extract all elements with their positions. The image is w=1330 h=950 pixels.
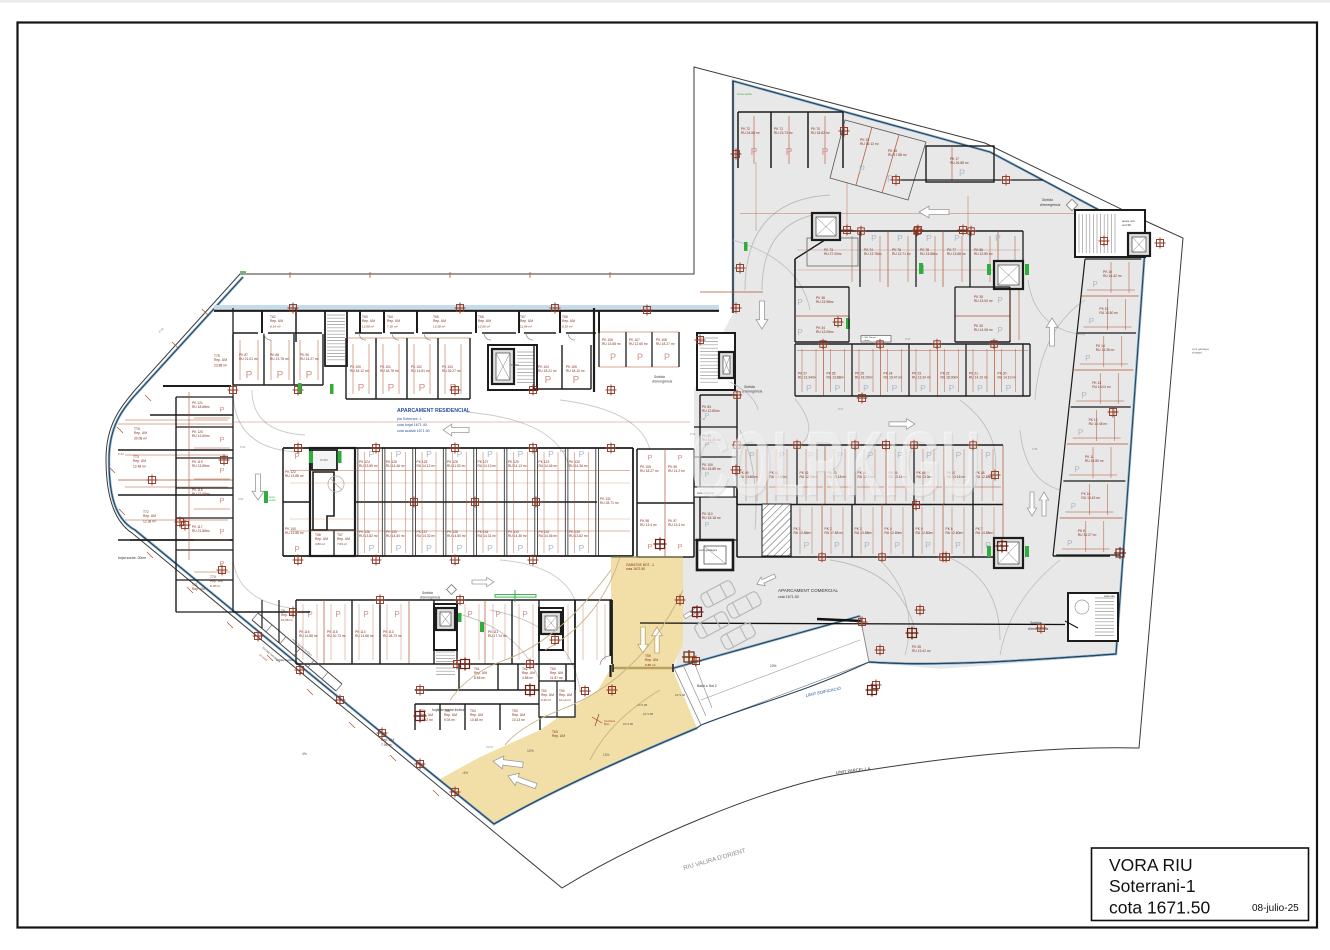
svg-text:P: P: [822, 147, 829, 158]
svg-text:P: P: [306, 370, 313, 381]
svg-text:P: P: [388, 383, 395, 394]
svg-text:RU 13.88m²: RU 13.88m²: [855, 531, 874, 535]
svg-text:7.63 m²: 7.63 m²: [337, 542, 347, 546]
svg-text:1671.98: 1671.98: [637, 703, 648, 707]
svg-text:COLRKIGU: COLRKIGU: [690, 413, 980, 515]
svg-text:P: P: [363, 610, 368, 619]
svg-text:RU 14.08 m²: RU 14.08 m²: [974, 328, 994, 332]
svg-text:RU 23.98m²: RU 23.98m²: [816, 300, 835, 304]
svg-text:P99: P99: [238, 497, 244, 501]
svg-text:Rep. UM: Rep. UM: [522, 671, 535, 675]
svg-text:RU 30.73 m²: RU 30.73 m²: [327, 634, 347, 638]
svg-text:10%: 10%: [770, 664, 777, 668]
svg-text:Rep. UM: Rep. UM: [645, 658, 658, 662]
svg-text:P: P: [677, 542, 682, 551]
svg-text:Rep. UM: Rep. UM: [143, 514, 156, 518]
svg-text:RU 14.66 m²: RU 14.66 m²: [355, 634, 375, 638]
svg-text:P: P: [995, 233, 1001, 243]
svg-text:RU 14.88m²: RU 14.88m²: [976, 531, 995, 535]
svg-text:8.14 m²: 8.14 m²: [270, 325, 281, 329]
svg-text:Rep. UM: Rep. UM: [512, 713, 525, 717]
svg-text:P: P: [797, 298, 802, 307]
svg-text:P42: P42: [560, 449, 566, 453]
svg-text:RU 28.71 m²: RU 28.71 m²: [600, 501, 620, 505]
svg-text:RU 13.85 m²: RU 13.85 m²: [359, 464, 379, 468]
svg-text:Sortida: Sortida: [422, 591, 433, 595]
svg-text:RU 23.73 m²: RU 23.73 m²: [774, 131, 794, 135]
svg-text:RU 14.13 m²: RU 14.13 m²: [478, 464, 498, 468]
svg-text:P: P: [426, 449, 432, 459]
svg-text:8.65 m²: 8.65 m²: [474, 676, 486, 680]
svg-text:RU 21.01 m²: RU 21.01 m²: [239, 357, 259, 361]
svg-text:08-julio-25: 08-julio-25: [1252, 903, 1299, 914]
svg-text:P: P: [457, 543, 463, 553]
svg-text:P: P: [751, 147, 758, 158]
svg-text:sala màq.: sala màq.: [1104, 594, 1116, 598]
svg-text:Rep. UM: Rep. UM: [552, 734, 565, 738]
svg-text:P: P: [219, 496, 224, 505]
svg-text:4%: 4%: [302, 752, 307, 756]
svg-text:VORA RIU: VORA RIU: [1109, 855, 1193, 875]
svg-text:RU 13.00 m²: RU 13.00 m²: [974, 299, 994, 303]
svg-text:RU 13.78 m²: RU 13.78 m²: [270, 357, 290, 361]
svg-text:RU 14.88 m²: RU 14.88 m²: [299, 634, 319, 638]
svg-text:RU 13.42 m²: RU 13.42 m²: [912, 649, 932, 653]
svg-text:-4%: -4%: [462, 771, 468, 775]
svg-text:d'emergència: d'emergència: [420, 596, 440, 600]
svg-text:7.20 m²: 7.20 m²: [387, 325, 398, 329]
svg-text:RU 18.27 m²: RU 18.27 m²: [656, 342, 676, 346]
svg-text:Rep. UM: Rep. UM: [444, 713, 457, 717]
svg-text:RU 14.30 m²: RU 14.30 m²: [386, 534, 406, 538]
svg-text:Rep. UM: Rep. UM: [562, 319, 575, 323]
svg-text:RU 13.4 m²: RU 13.4 m²: [668, 523, 686, 527]
svg-text:P: P: [548, 449, 554, 459]
svg-text:P: P: [219, 466, 224, 475]
svg-text:P47: P47: [838, 407, 844, 411]
svg-text:P: P: [369, 449, 375, 459]
svg-text:Rep. UM: Rep. UM: [270, 319, 283, 323]
svg-text:P: P: [495, 610, 500, 619]
svg-text:P-62: P-62: [118, 452, 124, 456]
svg-text:P: P: [797, 328, 802, 337]
svg-text:30.08 m²: 30.08 m²: [134, 437, 148, 441]
svg-text:RU 12.80 m²: RU 12.80 m²: [974, 252, 994, 256]
svg-text:Rep. UM: Rep. UM: [133, 459, 146, 463]
svg-text:RU 14.12 m²: RU 14.12 m²: [417, 464, 437, 468]
svg-text:RU 13.82 m²: RU 13.82 m²: [569, 534, 589, 538]
svg-text:verda: verda: [269, 498, 276, 502]
svg-text:9.16 m²: 9.16 m²: [541, 698, 551, 702]
svg-text:RU 14.35 m²: RU 14.35 m²: [1096, 348, 1116, 352]
svg-text:Rep. UM: Rep. UM: [214, 358, 227, 362]
svg-text:RU 18.21 m²: RU 18.21 m²: [538, 369, 558, 373]
svg-text:13.38 m²: 13.38 m²: [433, 325, 445, 329]
svg-text:P46: P46: [700, 417, 706, 421]
svg-text:P: P: [920, 383, 926, 393]
svg-text:P102: P102: [486, 745, 493, 749]
svg-text:RU 12.80m²: RU 12.80m²: [885, 531, 904, 535]
svg-text:11.84 m²: 11.84 m²: [520, 325, 532, 329]
svg-text:RU 14.13 m²: RU 14.13 m²: [508, 464, 528, 468]
svg-text:P: P: [610, 352, 616, 362]
svg-text:RU 27.00m²: RU 27.00m²: [824, 252, 843, 256]
svg-text:P: P: [1071, 502, 1076, 511]
svg-text:RU 12.60m²: RU 12.60m²: [192, 434, 211, 438]
svg-text:RU 17.88 m²: RU 17.88 m²: [825, 531, 845, 535]
svg-text:4.88 m²: 4.88 m²: [522, 676, 534, 680]
svg-text:P: P: [518, 449, 524, 459]
svg-text:P: P: [897, 233, 903, 243]
svg-text:P: P: [871, 233, 877, 243]
svg-text:P: P: [246, 370, 253, 381]
svg-text:Rep. UM: Rep. UM: [520, 319, 533, 323]
svg-text:P: P: [294, 545, 299, 554]
svg-text:P: P: [579, 449, 585, 459]
svg-text:P: P: [219, 405, 224, 414]
svg-text:P: P: [977, 383, 983, 393]
svg-text:P43: P43: [690, 432, 696, 436]
svg-text:P: P: [396, 543, 402, 553]
svg-text:RU 14.36 m²: RU 14.36 m²: [539, 534, 559, 538]
svg-text:Rep. UM: Rep. UM: [387, 319, 400, 323]
svg-text:zona verda: zona verda: [737, 92, 752, 96]
svg-text:P: P: [545, 375, 552, 386]
svg-text:Soterrani-1: Soterrani-1: [1109, 876, 1196, 896]
svg-text:10.48 m²: 10.48 m²: [470, 718, 484, 722]
svg-text:P: P: [1074, 465, 1079, 474]
svg-text:RU 13.88m²: RU 13.88m²: [827, 376, 846, 380]
svg-text:P: P: [487, 449, 493, 459]
svg-text:8.18 m²: 8.18 m²: [210, 584, 220, 588]
svg-text:Balcó s. Bot 2: Balcó s. Bot 2: [697, 684, 717, 688]
svg-text:RU 13.50 m²: RU 13.50 m²: [1099, 311, 1119, 315]
svg-text:P: P: [369, 543, 375, 553]
svg-text:P: P: [1082, 391, 1087, 400]
svg-text:RU 14.27 m²: RU 14.27 m²: [300, 357, 320, 361]
svg-text:forjat de sostre inclinat: forjat de sostre inclinat: [432, 708, 465, 712]
svg-text:cota 1671.50: cota 1671.50: [1109, 898, 1210, 918]
svg-text:P: P: [677, 453, 682, 462]
svg-text:RU 13.48 m²: RU 13.48 m²: [1089, 422, 1109, 426]
svg-text:RU 13.4 m²: RU 13.4 m²: [640, 523, 658, 527]
svg-text:RU 18.18 m²: RU 18.18 m²: [702, 516, 722, 520]
svg-text:PAM6: PAM6: [511, 363, 519, 367]
svg-text:P: P: [985, 450, 991, 460]
svg-text:P: P: [997, 296, 1002, 305]
svg-text:RU 14.36 m²: RU 14.36 m²: [569, 464, 589, 468]
svg-text:P: P: [954, 233, 960, 243]
svg-text:RU 12.88 m²: RU 12.88 m²: [285, 531, 305, 535]
svg-text:RU 14.10 m²: RU 14.10 m²: [998, 376, 1018, 380]
svg-text:P: P: [664, 352, 670, 362]
svg-text:cota forjat 1671.40: cota forjat 1671.40: [397, 423, 427, 427]
svg-text:L.SM. Dimens.: L.SM. Dimens.: [863, 337, 878, 339]
svg-text:3.80 m²: 3.80 m²: [315, 542, 325, 546]
svg-text:9.04 m²: 9.04 m²: [444, 718, 456, 722]
svg-text:RU 28.73 m²: RU 28.73 m²: [383, 634, 403, 638]
svg-text:Rep. UM: Rep. UM: [559, 693, 572, 697]
svg-text:P: P: [637, 352, 643, 362]
svg-text:RU 18.82 m²: RU 18.82 m²: [811, 131, 831, 135]
svg-text:s.dades: s.dades: [863, 340, 872, 342]
svg-text:P: P: [1006, 383, 1012, 393]
svg-text:RU 14.42 m²: RU 14.42 m²: [1103, 274, 1123, 278]
svg-text:Rep. UM: Rep. UM: [192, 587, 205, 591]
svg-text:P48: P48: [1032, 447, 1038, 451]
svg-text:P: P: [955, 540, 961, 550]
svg-text:RU 11.52 m²: RU 11.52 m²: [447, 464, 466, 468]
svg-text:cota 1671.50: cota 1671.50: [626, 567, 645, 571]
svg-text:sort 98: sort 98: [1122, 223, 1131, 227]
svg-text:RU 12.80m²: RU 12.80m²: [916, 531, 935, 535]
svg-text:8.20 m²: 8.20 m²: [562, 325, 573, 329]
svg-text:P: P: [487, 543, 493, 553]
svg-text:P: P: [647, 542, 652, 551]
svg-text:APARCAMENT RESIDENCIAL: APARCAMENT RESIDENCIAL: [397, 408, 471, 414]
svg-text:forjat sostre -30cm: forjat sostre -30cm: [118, 556, 146, 560]
svg-text:Sortida: Sortida: [1042, 198, 1053, 202]
svg-text:P: P: [997, 326, 1002, 335]
svg-text:P: P: [926, 233, 932, 243]
svg-text:RU 14.2 m²: RU 14.2 m²: [668, 469, 686, 473]
svg-text:pla Soterrani -1: pla Soterrani -1: [397, 417, 422, 421]
svg-text:P: P: [1067, 539, 1072, 548]
svg-text:P: P: [548, 543, 554, 553]
svg-text:10.13 m²: 10.13 m²: [512, 718, 526, 722]
svg-text:1671.98: 1671.98: [675, 693, 686, 697]
svg-text:cota acabat 1671.50: cota acabat 1671.50: [397, 429, 430, 433]
svg-text:P: P: [895, 540, 901, 550]
svg-text:RU 13.34 m²: RU 13.34 m²: [912, 376, 932, 380]
svg-text:Sortida: Sortida: [744, 385, 755, 389]
svg-text:P: P: [419, 383, 426, 394]
svg-text:RU 14.46 m²: RU 14.46 m²: [539, 464, 559, 468]
svg-text:P: P: [277, 370, 284, 381]
svg-text:10.68 m²: 10.68 m²: [281, 618, 293, 622]
svg-text:P: P: [804, 540, 810, 550]
svg-text:Bosc: Bosc: [604, 723, 610, 726]
svg-text:P: P: [1085, 354, 1090, 363]
svg-text:23.88 m²: 23.88 m²: [214, 364, 228, 368]
svg-text:P: P: [467, 610, 472, 619]
svg-text:vent garatges: vent garatges: [699, 548, 718, 552]
svg-text:11.87 m²: 11.87 m²: [550, 676, 564, 680]
svg-text:RU 13.05m²: RU 13.05m²: [816, 330, 835, 334]
svg-text:12.48 m²: 12.48 m²: [133, 465, 147, 469]
svg-text:P: P: [219, 527, 224, 536]
svg-text:RU 18.10 m²: RU 18.10 m²: [566, 369, 586, 373]
svg-text:P: P: [573, 375, 580, 386]
svg-text:RU 13.34m²: RU 13.34m²: [798, 376, 817, 380]
svg-text:RU 27.08m²: RU 27.08m²: [192, 492, 211, 496]
svg-text:P: P: [394, 610, 399, 619]
svg-text:P: P: [219, 435, 224, 444]
svg-text:P: P: [835, 383, 841, 393]
svg-text:RU 13.88 m²: RU 13.88 m²: [947, 252, 967, 256]
svg-text:RU 18.01 m²: RU 18.01 m²: [1092, 385, 1112, 389]
svg-text:RU 24.88 m²: RU 24.88 m²: [741, 131, 761, 135]
svg-text:RU 14.36 m²: RU 14.36 m²: [508, 534, 528, 538]
svg-text:PAM5: PAM5: [320, 458, 328, 462]
svg-text:P43: P43: [240, 445, 246, 449]
svg-text:RU 13.88m²: RU 13.88m²: [920, 252, 939, 256]
svg-text:P: P: [864, 540, 870, 550]
svg-text:RU 14.10 m²: RU 14.10 m²: [969, 376, 989, 380]
svg-text:P: P: [358, 383, 365, 394]
svg-text:RU 14.46 m²: RU 14.46 m²: [386, 464, 406, 468]
svg-text:12%: 12%: [603, 753, 610, 757]
svg-text:RU 13.58 m²: RU 13.58 m²: [602, 342, 622, 346]
svg-text:RU 18.68m²: RU 18.68m²: [192, 405, 211, 409]
svg-text:APARCAMENT COMERCIAL: APARCAMENT COMERCIAL: [778, 588, 839, 593]
svg-text:P: P: [834, 540, 840, 550]
svg-text:RU 17.14 m²: RU 17.14 m²: [488, 634, 508, 638]
svg-text:10.13 m²: 10.13 m²: [559, 698, 571, 702]
svg-text:P: P: [705, 522, 710, 529]
svg-text:1671.80: 1671.80: [623, 722, 634, 726]
svg-text:RU 15.13 m²: RU 15.13 m²: [860, 142, 880, 146]
svg-text:P: P: [450, 383, 457, 394]
svg-text:P: P: [457, 449, 463, 459]
svg-text:RU 13.85m²: RU 13.85m²: [192, 464, 211, 468]
svg-text:8.88 m²: 8.88 m²: [645, 663, 656, 667]
svg-text:RU 12.60 m²: RU 12.60 m²: [629, 342, 649, 346]
svg-text:Rep. UM: Rep. UM: [541, 693, 554, 697]
svg-text:P: P: [863, 383, 869, 393]
svg-text:P: P: [786, 147, 793, 158]
svg-text:7.96 m²: 7.96 m²: [381, 743, 393, 747]
svg-text:Rep. UM: Rep. UM: [134, 431, 147, 435]
svg-text:RU 13.88m²: RU 13.88m²: [794, 531, 813, 535]
svg-text:sortida vianants: sortida vianants: [276, 658, 295, 662]
svg-text:RU 18.00m²: RU 18.00m²: [941, 376, 960, 380]
svg-text:P: P: [1092, 280, 1097, 289]
svg-text:Rep. UM: Rep. UM: [478, 319, 491, 323]
svg-text:cota 1671.50: cota 1671.50: [778, 595, 799, 599]
svg-text:P44: P44: [748, 475, 754, 479]
svg-text:P: P: [647, 453, 652, 462]
svg-text:RU 12.80m²: RU 12.80m²: [946, 531, 965, 535]
svg-text:P: P: [859, 164, 865, 174]
svg-text:Rep. UM: Rep. UM: [337, 537, 350, 541]
svg-text:Rep. UM: Rep. UM: [433, 319, 446, 323]
svg-text:P: P: [294, 452, 299, 461]
svg-text:d'emergència: d'emergència: [1040, 203, 1060, 207]
svg-text:RU 18.29m²: RU 18.29m²: [855, 376, 874, 380]
svg-text:12.88 m²: 12.88 m²: [362, 325, 374, 329]
svg-text:P: P: [892, 383, 898, 393]
svg-text:P: P: [522, 610, 527, 619]
svg-text:RU 13.71 m²: RU 13.71 m²: [892, 252, 912, 256]
svg-text:P: P: [335, 610, 340, 619]
svg-text:P: P: [1078, 428, 1083, 437]
svg-text:P45: P45: [905, 337, 911, 341]
svg-text:P: P: [518, 543, 524, 553]
svg-text:RU 21.88m²: RU 21.88m²: [192, 529, 211, 533]
svg-text:RU 15.47 m²: RU 15.47 m²: [884, 376, 904, 380]
svg-text:RU 13.43 m²: RU 13.43 m²: [1081, 496, 1101, 500]
svg-text:P: P: [806, 383, 812, 393]
svg-text:12%: 12%: [527, 749, 534, 753]
svg-text:P: P: [925, 540, 931, 550]
svg-text:Rep. UM: Rep. UM: [210, 579, 223, 583]
svg-text:1671.88: 1671.88: [643, 712, 654, 716]
svg-text:P: P: [1089, 317, 1094, 326]
svg-text:d'emergència: d'emergència: [652, 380, 672, 384]
svg-text:P: P: [579, 543, 585, 553]
svg-text:Rep. UM: Rep. UM: [362, 319, 375, 323]
svg-text:Rep. UM: Rep. UM: [550, 671, 563, 675]
svg-text:s/rasant: s/rasant: [1192, 351, 1202, 355]
svg-text:Sortida: Sortida: [654, 375, 665, 379]
svg-text:RU 13.88 m²: RU 13.88 m²: [285, 474, 305, 478]
svg-text:RU 18.80 m²: RU 18.80 m²: [1085, 459, 1105, 463]
svg-text:RU 14.31 m²: RU 14.31 m²: [478, 534, 498, 538]
svg-text:Rep. UM: Rep. UM: [315, 537, 328, 541]
svg-text:RU 14.32 m²: RU 14.32 m²: [417, 534, 437, 538]
svg-text:RU 18.27 m²: RU 18.27 m²: [640, 469, 660, 473]
svg-text:P: P: [396, 449, 402, 459]
svg-text:Rep. UM: Rep. UM: [381, 738, 394, 742]
svg-text:P: P: [426, 543, 432, 553]
svg-text:RU 17.88 m²: RU 17.88 m²: [888, 153, 908, 157]
svg-text:Rep. UM: Rep. UM: [470, 713, 483, 717]
svg-text:RU 13.82 m²: RU 13.82 m²: [359, 534, 379, 538]
svg-text:RU 34.27 m²: RU 34.27 m²: [1078, 533, 1098, 537]
svg-text:P: P: [959, 168, 965, 178]
svg-text:P: P: [949, 383, 955, 393]
svg-text:12.80 m²: 12.80 m²: [478, 325, 490, 329]
svg-text:RU 26.88 m²: RU 26.88 m²: [950, 161, 970, 165]
svg-text:RU 14.80 m²: RU 14.80 m²: [447, 534, 467, 538]
